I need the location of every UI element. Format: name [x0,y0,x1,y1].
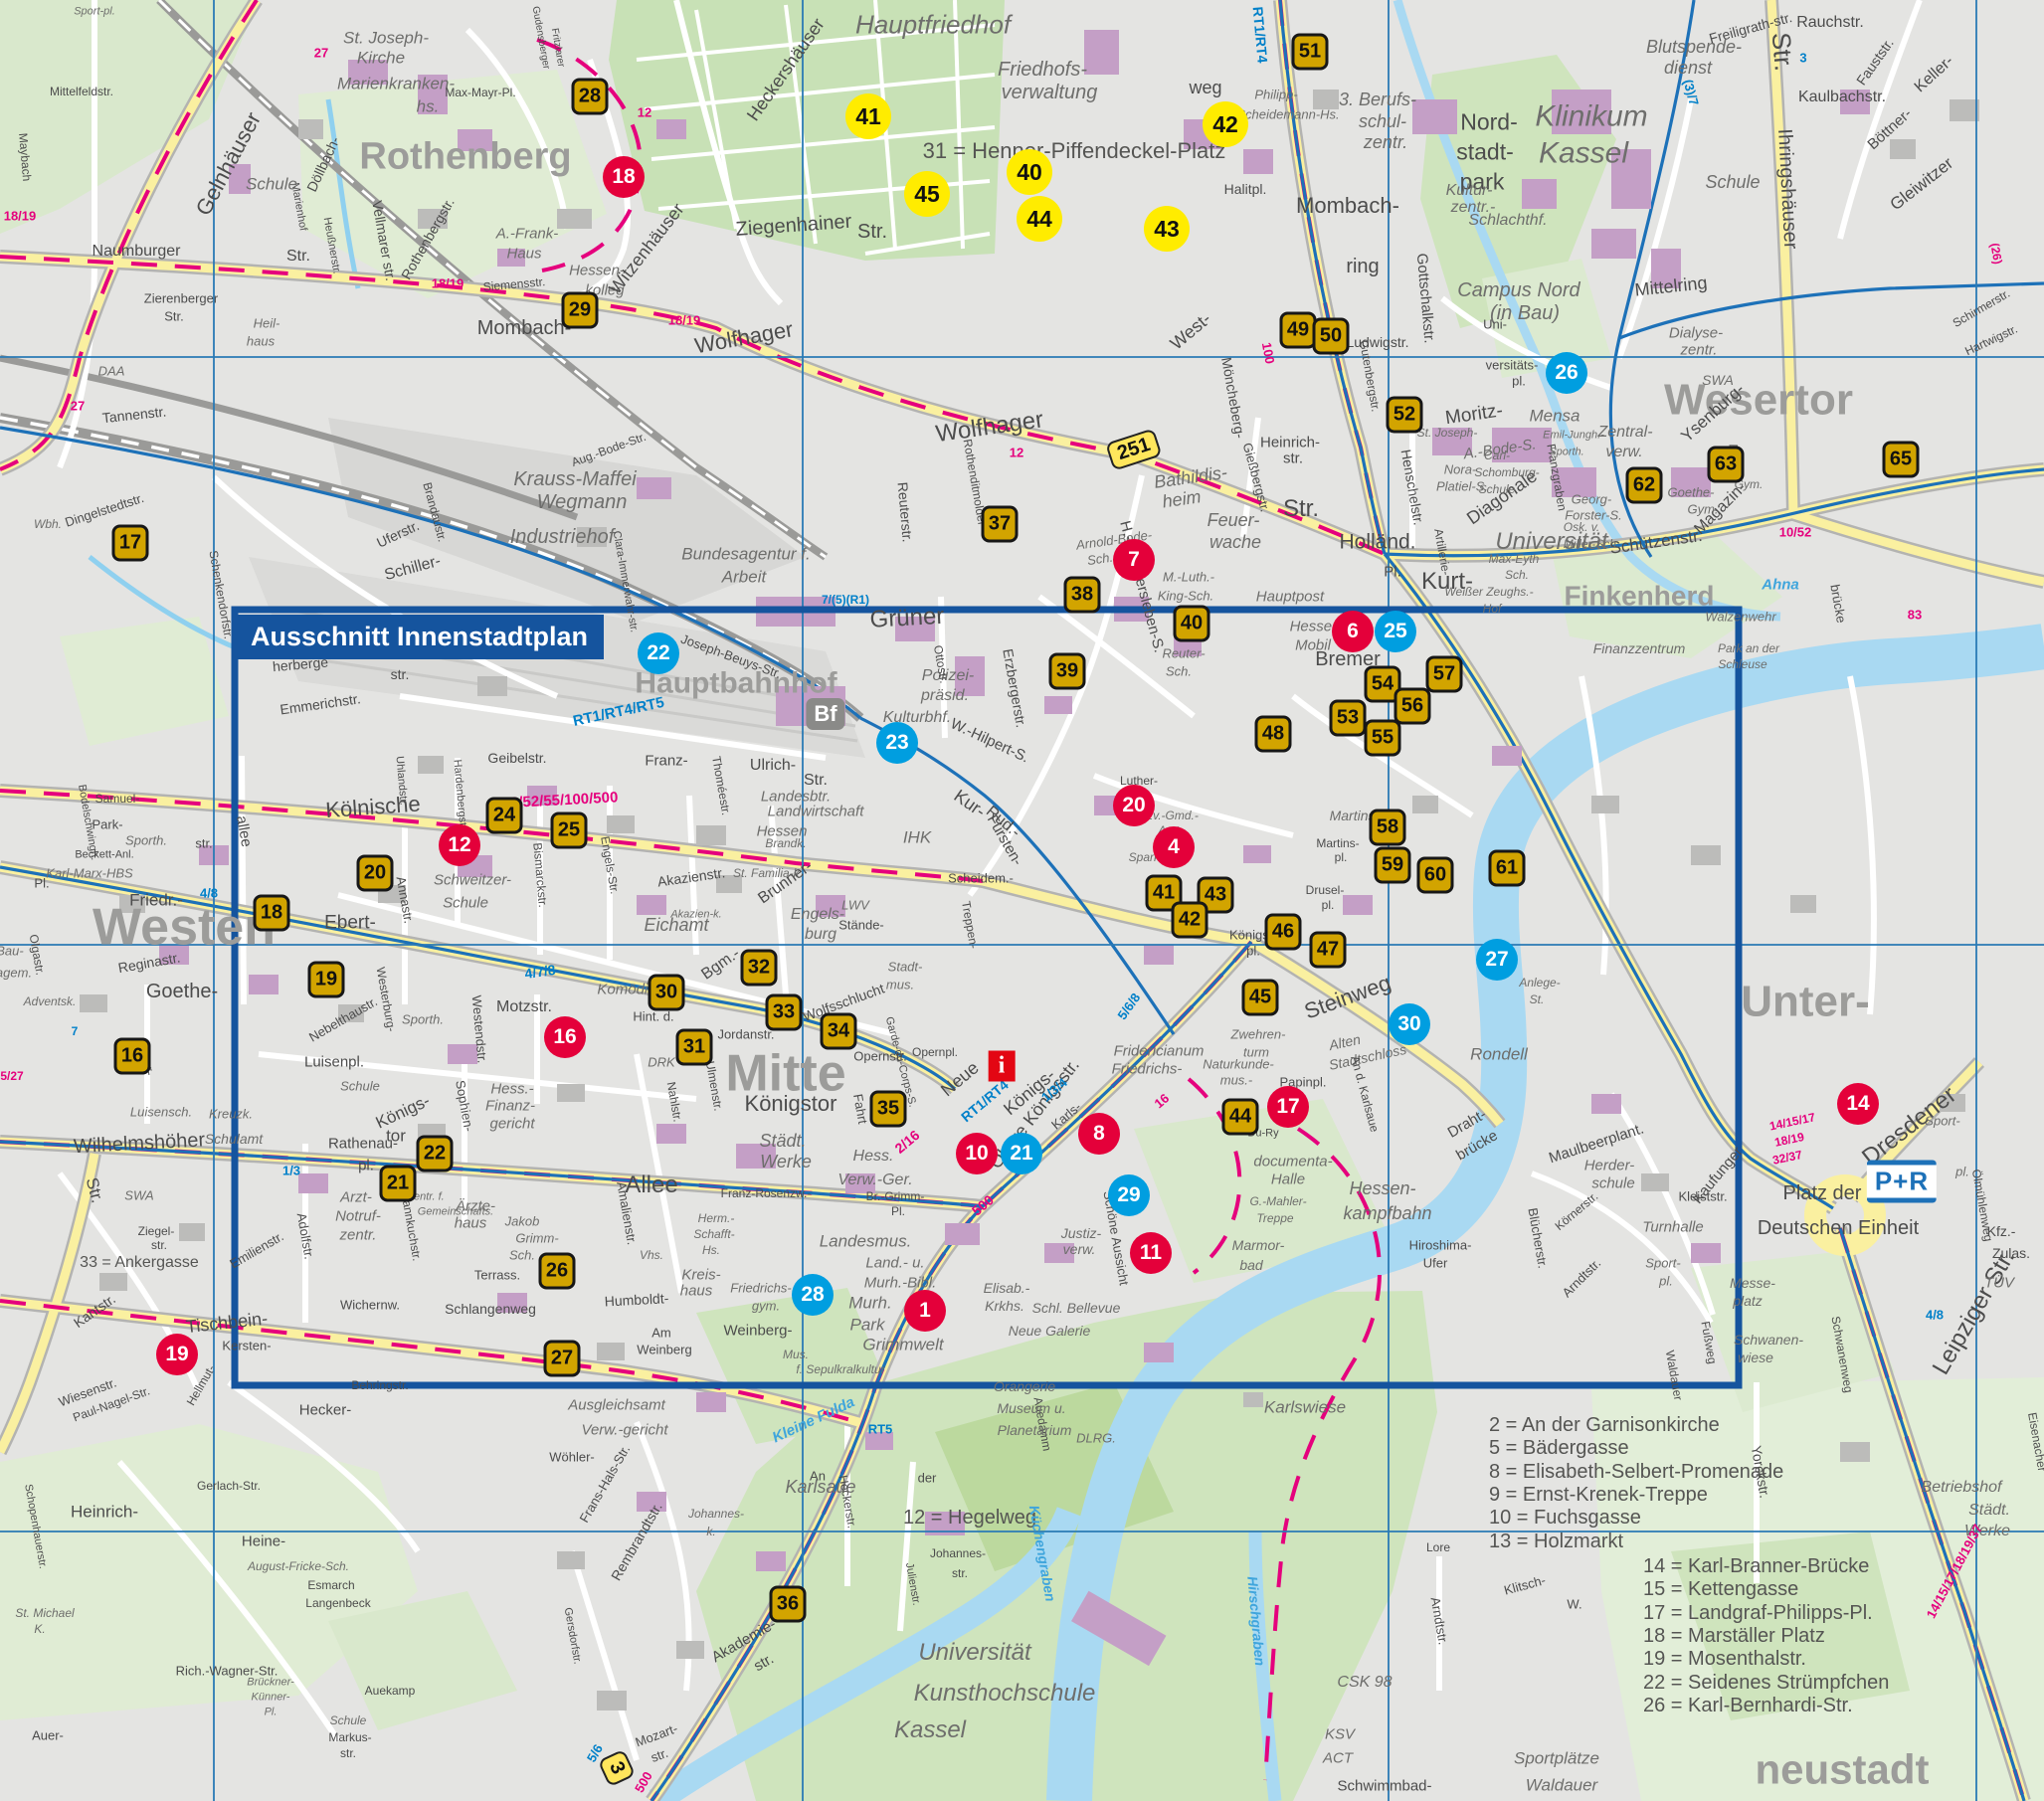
blue-marker-22[interactable]: 22 [638,632,679,674]
station-badge: Bf [806,698,844,730]
ochre-marker-35[interactable]: 35 [870,1091,907,1128]
red-marker-10[interactable]: 10 [956,1133,998,1174]
red-marker-8[interactable]: 8 [1078,1113,1120,1155]
ochre-marker-48[interactable]: 48 [1255,716,1292,753]
blue-marker-30[interactable]: 30 [1389,1003,1430,1045]
ochre-marker-62[interactable]: 62 [1626,467,1663,504]
ochre-marker-57[interactable]: 57 [1426,656,1463,693]
yellow-marker-44[interactable]: 44 [1017,196,1062,242]
ochre-marker-65[interactable]: 65 [1883,442,1920,478]
blue-marker-29[interactable]: 29 [1108,1174,1150,1216]
red-marker-17[interactable]: 17 [1267,1086,1309,1128]
ochre-marker-29[interactable]: 29 [562,292,599,329]
red-marker-19[interactable]: 19 [156,1334,198,1375]
ochre-marker-36[interactable]: 36 [770,1586,807,1623]
blue-marker-26[interactable]: 26 [1546,352,1587,394]
blue-marker-21[interactable]: 21 [1001,1133,1042,1174]
ochre-marker-47[interactable]: 47 [1310,932,1347,969]
yellow-marker-40[interactable]: 40 [1007,149,1052,195]
ochre-marker-30[interactable]: 30 [649,975,685,1011]
blue-marker-23[interactable]: 23 [876,722,918,764]
ochre-marker-44[interactable]: 44 [1222,1099,1259,1136]
ochre-marker-24[interactable]: 24 [486,798,523,834]
ochre-marker-56[interactable]: 56 [1394,688,1431,725]
ochre-marker-33[interactable]: 33 [766,994,803,1031]
yellow-marker-42[interactable]: 42 [1203,101,1248,147]
ochre-marker-39[interactable]: 39 [1049,653,1086,690]
ochre-marker-51[interactable]: 51 [1292,34,1329,71]
ochre-marker-50[interactable]: 50 [1313,318,1350,355]
ochre-marker-53[interactable]: 53 [1330,700,1367,737]
ochre-marker-46[interactable]: 46 [1265,914,1302,951]
red-marker-7[interactable]: 7 [1113,539,1155,581]
city-map-kassel: Ausschnitt Innenstadtplan RothenbergWest… [0,0,2044,1801]
ochre-marker-18[interactable]: 18 [254,895,290,932]
ochre-marker-40[interactable]: 40 [1174,606,1210,642]
ochre-marker-20[interactable]: 20 [357,855,394,892]
red-marker-16[interactable]: 16 [544,1016,586,1058]
ochre-marker-49[interactable]: 49 [1280,312,1317,349]
tourist-info-icon: i [989,1051,1016,1082]
red-marker-6[interactable]: 6 [1332,611,1374,652]
ochre-marker-19[interactable]: 19 [308,962,345,998]
ochre-marker-37[interactable]: 37 [982,506,1019,543]
ochre-marker-25[interactable]: 25 [551,812,588,849]
inset-title: Ausschnitt Innenstadtplan [235,615,604,659]
yellow-marker-41[interactable]: 41 [845,93,891,139]
red-marker-1[interactable]: 1 [904,1290,946,1332]
ochre-marker-61[interactable]: 61 [1489,850,1526,887]
map-canvas [0,0,2044,1801]
ochre-marker-17[interactable]: 17 [112,525,149,562]
red-marker-18[interactable]: 18 [603,156,645,198]
park-and-ride-badge: P+R [1867,1161,1937,1203]
yellow-marker-45[interactable]: 45 [904,171,950,217]
ochre-marker-38[interactable]: 38 [1064,577,1101,614]
red-marker-14[interactable]: 14 [1837,1083,1879,1125]
ochre-marker-26[interactable]: 26 [539,1253,576,1290]
red-marker-4[interactable]: 4 [1153,826,1195,868]
blue-marker-25[interactable]: 25 [1375,611,1416,652]
ochre-marker-45[interactable]: 45 [1242,980,1279,1016]
ochre-marker-34[interactable]: 34 [821,1013,857,1050]
ochre-marker-59[interactable]: 59 [1375,847,1411,884]
ochre-marker-22[interactable]: 22 [417,1136,454,1172]
blue-marker-27[interactable]: 27 [1476,939,1518,981]
ochre-marker-32[interactable]: 32 [741,950,778,987]
ochre-marker-60[interactable]: 60 [1417,857,1454,894]
yellow-marker-43[interactable]: 43 [1144,206,1190,252]
ochre-marker-58[interactable]: 58 [1370,810,1406,846]
ochre-marker-16[interactable]: 16 [114,1038,151,1075]
ochre-marker-52[interactable]: 52 [1387,397,1423,434]
ochre-marker-63[interactable]: 63 [1708,447,1745,483]
ochre-marker-27[interactable]: 27 [544,1341,581,1377]
red-marker-20[interactable]: 20 [1113,785,1155,826]
red-marker-11[interactable]: 11 [1130,1232,1172,1274]
ochre-marker-31[interactable]: 31 [676,1029,713,1066]
ochre-marker-55[interactable]: 55 [1365,720,1401,757]
ochre-marker-28[interactable]: 28 [572,79,609,115]
red-marker-12[interactable]: 12 [439,824,480,866]
ochre-marker-42[interactable]: 42 [1172,902,1208,939]
ochre-marker-21[interactable]: 21 [380,1166,417,1202]
blue-marker-28[interactable]: 28 [792,1274,834,1316]
